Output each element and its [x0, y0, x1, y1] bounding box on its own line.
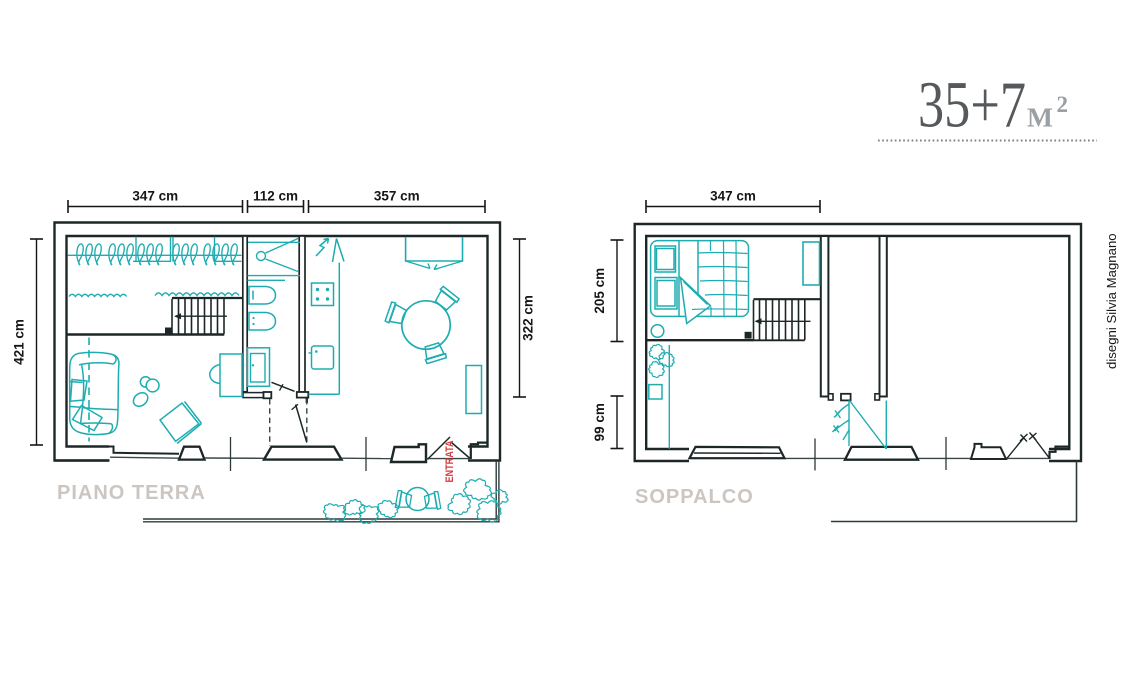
svg-text:SOPPALCO: SOPPALCO — [635, 486, 754, 508]
svg-text:99 cm: 99 cm — [592, 403, 607, 441]
svg-text:disegni Silvia Magnano: disegni Silvia Magnano — [1104, 233, 1119, 369]
svg-text:357 cm: 357 cm — [374, 189, 420, 204]
svg-text:347 cm: 347 cm — [132, 189, 178, 204]
svg-text:M: M — [1027, 102, 1053, 133]
svg-text:2: 2 — [1057, 92, 1069, 117]
svg-text:421 cm: 421 cm — [12, 319, 27, 365]
svg-text:PIANO TERRA: PIANO TERRA — [57, 482, 206, 504]
svg-text:35+7: 35+7 — [918, 69, 1026, 142]
svg-text:205 cm: 205 cm — [592, 268, 607, 314]
svg-text:347 cm: 347 cm — [710, 189, 756, 204]
svg-text:ENTRATA: ENTRATA — [444, 440, 456, 482]
svg-text:322 cm: 322 cm — [521, 295, 536, 341]
svg-text:112 cm: 112 cm — [253, 189, 298, 204]
